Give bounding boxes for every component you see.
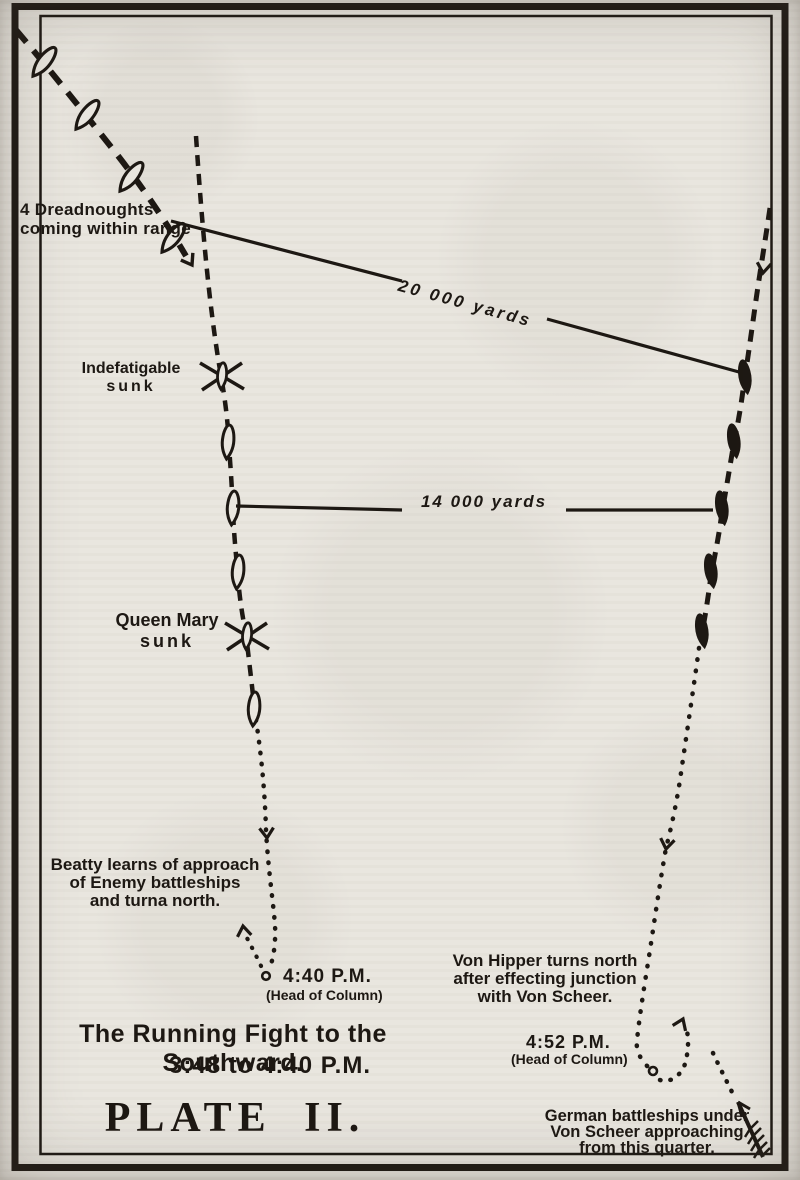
ship-icon: [737, 359, 754, 394]
label-line: Indefatigable: [64, 360, 198, 378]
label-line: Von Hipper turns north: [444, 952, 646, 970]
turn-marker-circle-452: [649, 1067, 657, 1075]
battle-diagram-art: [0, 0, 800, 1180]
label-time-452: 4:52 P.M.: [526, 1032, 611, 1053]
label-head-of-column-452: (Head of Column): [511, 1051, 628, 1067]
label-time-440: 4:40 P.M.: [283, 966, 372, 988]
label-line: after effecting junction: [444, 970, 646, 988]
label-line: 4 Dreadnoughts: [20, 200, 191, 219]
label-dreadnoughts: 4 Dreadnoughts coming within range: [20, 200, 191, 238]
label-head-of-column-440: (Head of Column): [266, 987, 383, 1003]
label-queen-mary-sunk: Queen Mary sunk: [92, 610, 242, 652]
ship-icon: [247, 692, 261, 727]
label-line: coming within range: [20, 219, 191, 238]
label-line: Queen Mary: [92, 610, 242, 631]
british-battlecruiser-track: [196, 136, 275, 980]
ship-icon: [221, 425, 235, 460]
ship-icon: [231, 555, 245, 590]
ship-icon: [726, 423, 743, 458]
label-line: Beatty learns of approach: [38, 856, 272, 874]
label-line: of Enemy battleships: [38, 874, 272, 892]
ship-icon: [226, 491, 240, 526]
label-beatty-turn: Beatty learns of approach of Enemy battl…: [38, 856, 272, 910]
label-von-hipper-turn: Von Hipper turns north after effecting j…: [444, 952, 646, 1006]
label-line: German battleships under: [544, 1108, 750, 1124]
label-line: and turna north.: [38, 892, 272, 910]
label-indefatigable-sunk: Indefatigable sunk: [64, 360, 198, 396]
label-line: Von Scheer approaching: [544, 1124, 750, 1140]
ship-icon: [714, 490, 731, 525]
label-line: sunk: [64, 378, 198, 396]
turn-marker-circle-440: [262, 972, 270, 980]
label-range-14000: 14 000 yards: [400, 492, 568, 512]
label-scheer-approach: German battleships under Von Scheer appr…: [544, 1108, 750, 1156]
label-line: from this quarter.: [544, 1140, 750, 1156]
german-battlecruiser-track: [637, 208, 771, 1081]
plate-number: PLATE II.: [35, 1094, 435, 1142]
ship-icon: [694, 613, 711, 648]
label-line: with Von Scheer.: [444, 988, 646, 1006]
ship-icon: [703, 553, 720, 588]
plate-page: 4 Dreadnoughts coming within range 20 00…: [0, 0, 800, 1180]
label-line: sunk: [92, 631, 242, 652]
caption-time-range: 3:48 to 4:40 P.M.: [70, 1052, 470, 1080]
indefatigable-sunk-mark: [200, 362, 244, 390]
